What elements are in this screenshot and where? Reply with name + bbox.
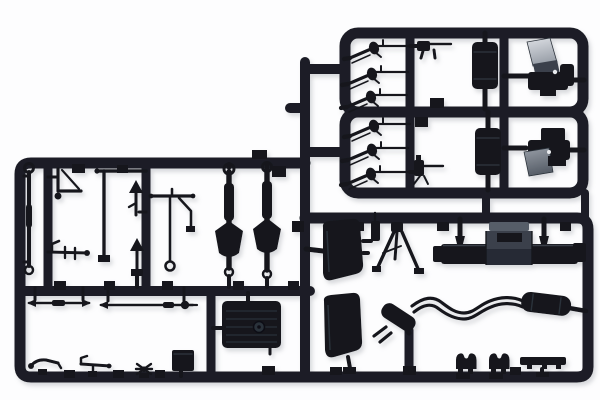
photo-stage [0,0,600,400]
radiator-part [213,293,281,354]
bracket-part [48,169,81,200]
cab-part [504,38,584,96]
rifle-part [344,40,410,63]
fuel-tank-part [475,112,501,190]
sprue-photo [0,0,600,400]
seat-back-part [324,293,362,374]
rifle-part [344,118,410,141]
axle-part [253,163,281,288]
cab-part [504,128,584,176]
bracket-part [48,241,90,259]
machine-gun-bipod-part [410,155,443,184]
rifle-part [342,66,408,89]
fuel-tank-part [472,33,498,109]
sprue [20,33,588,379]
smg-part [410,41,451,58]
link-rod-part [179,198,195,232]
rifle-part [342,142,408,165]
axle-part [215,164,243,287]
seat-back-part [306,219,363,280]
